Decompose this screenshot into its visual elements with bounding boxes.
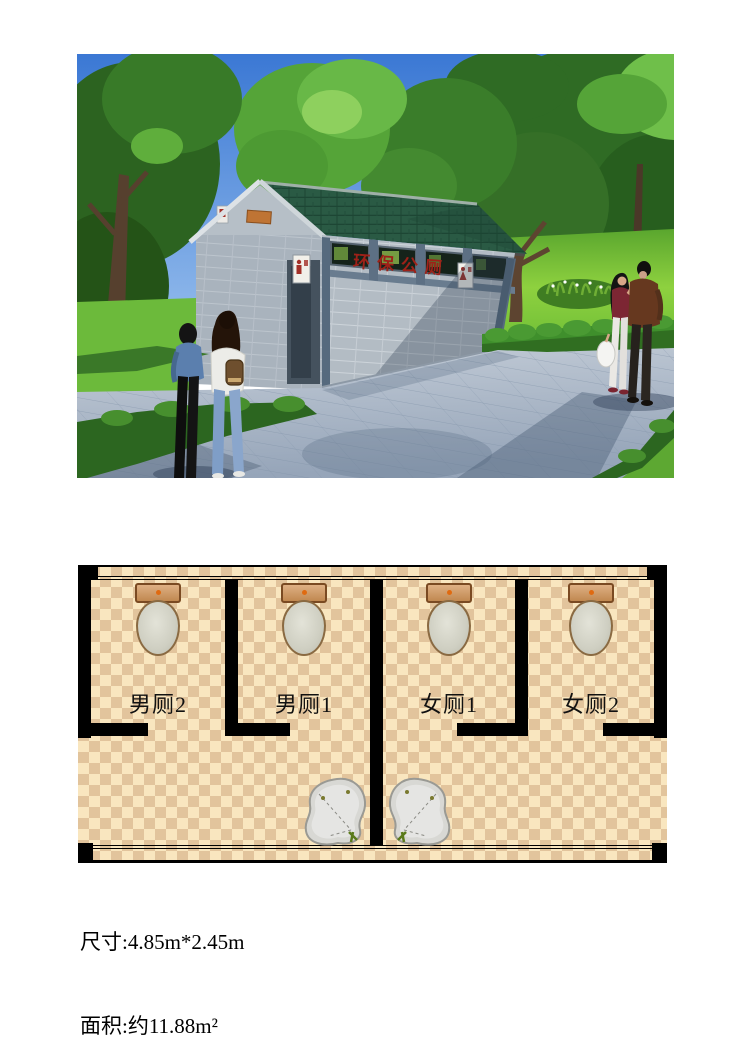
stall-label-men2: 男厕2 (91, 687, 225, 719)
flower-bed (537, 279, 621, 309)
stall-divider-women (515, 580, 528, 736)
stall-wall-men1 (225, 723, 290, 736)
floor-plan: 男厕2 男厕1 女厕1 女厕2 (78, 565, 667, 863)
bottom-wall (92, 845, 653, 863)
toilet-icon (426, 583, 472, 656)
toilet-icon (135, 583, 181, 656)
stall-label-men1: 男厕1 (238, 687, 370, 719)
stall-label-women2: 女厕2 (528, 687, 654, 719)
center-dividing-wall (370, 580, 383, 845)
dimensions-line: 尺寸:4.85m*2.45m (80, 928, 245, 956)
stall-label-women1: 女厕1 (383, 687, 515, 719)
tree-shadow (302, 428, 492, 478)
wall-corner-bottom-right (652, 843, 667, 863)
left-corner-column (322, 237, 330, 390)
stall-wall-men2 (91, 723, 148, 736)
male-restroom-sign-icon (293, 255, 310, 283)
washbasin-icon (299, 776, 370, 848)
plastic-bag (597, 341, 615, 367)
right-wall (654, 565, 667, 738)
washbasin-icon (385, 776, 456, 848)
stall-divider-men (225, 580, 238, 736)
toilet-rendering-image: 环保公厕 (77, 54, 674, 478)
spec-text-block: 尺寸:4.85m*2.45m 面积:约11.88m² (80, 872, 245, 1053)
name-plaque (247, 210, 272, 224)
document-page: 环保公厕 (0, 0, 745, 1053)
top-wall (97, 565, 648, 580)
toilet-icon (568, 583, 614, 656)
wall-corner-bottom-left (78, 843, 93, 863)
left-wall (78, 565, 91, 738)
stall-wall-women2 (603, 723, 654, 736)
stall-wall-women1 (457, 723, 528, 736)
rendering-scene: 环保公厕 (77, 54, 674, 478)
area-line: 面积:约11.88m² (80, 1012, 245, 1040)
toilet-icon (281, 583, 327, 656)
